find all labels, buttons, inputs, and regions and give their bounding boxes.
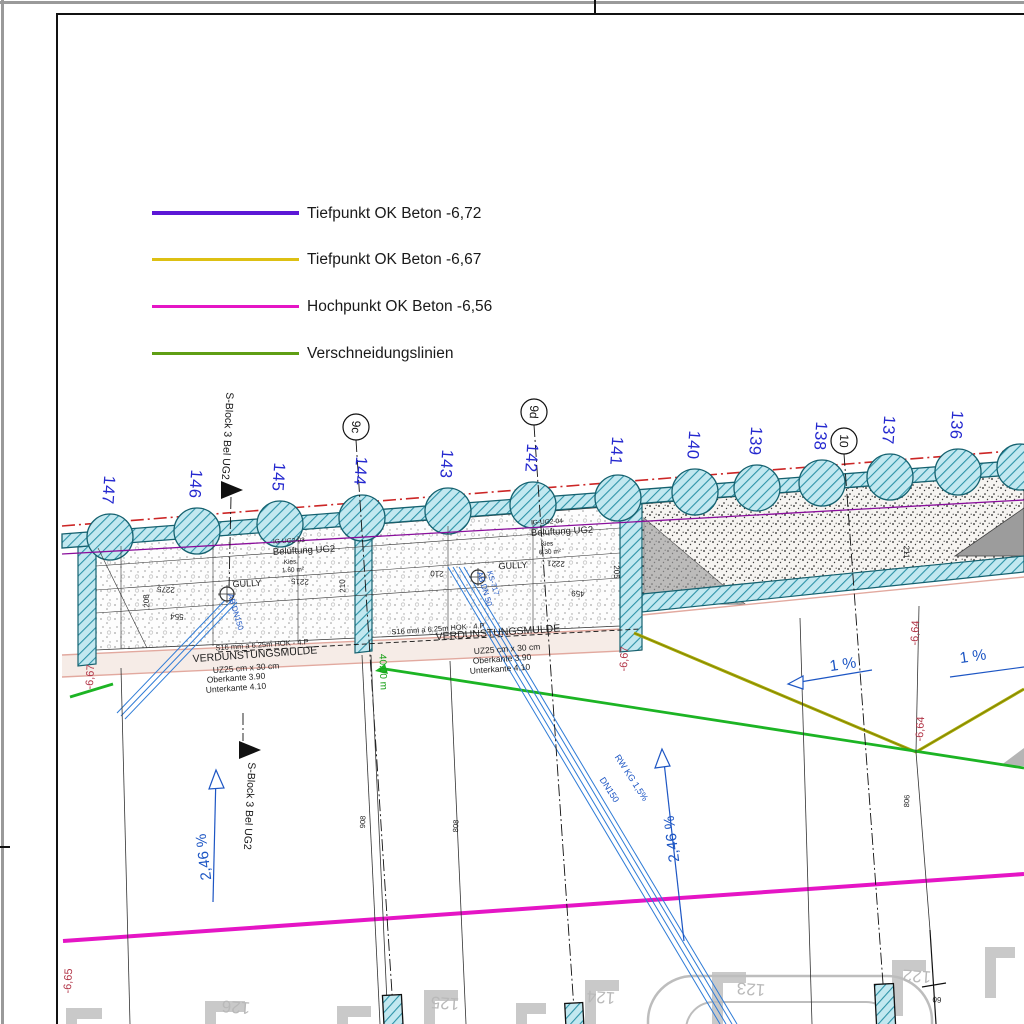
wall-right <box>620 504 642 652</box>
axis-number: 141 <box>607 436 625 466</box>
parking-number: 123 <box>736 980 765 999</box>
legend-label: Hochpunkt OK Beton -6,56 <box>307 299 492 315</box>
grid-bubble-circles <box>343 399 857 454</box>
parking-number: 122 <box>902 967 931 986</box>
legend-label: Tiefpunkt OK Beton -6,72 <box>307 206 481 222</box>
dim-label: 554 <box>170 612 184 621</box>
wall-mid <box>355 524 372 653</box>
axis-number: 136 <box>947 410 965 440</box>
green-dimension-label: 40.00 m <box>376 654 387 690</box>
dim-label: 806 <box>903 795 911 808</box>
dim-label: 60 <box>932 995 941 1004</box>
dim-label: 2275 <box>157 585 175 594</box>
axis-number: 147 <box>99 475 117 505</box>
slope-label-1pct-right: 1 % <box>959 647 988 666</box>
axis-number: 145 <box>269 462 287 492</box>
parking-number: 126 <box>221 998 250 1017</box>
gully-label: GULLY <box>232 579 261 589</box>
dim-label: 808 <box>452 820 460 833</box>
grid-bubble-label: 9d <box>528 405 541 419</box>
dim-label: 205 <box>612 565 620 578</box>
parking-dividers <box>66 947 1015 1024</box>
grid-bubble-label: 10 <box>838 434 851 448</box>
axis-number: 138 <box>811 421 829 451</box>
gray-wedge-small <box>1000 748 1024 766</box>
level-664-lower: -6,64 <box>915 716 927 742</box>
level-665-bottom: -6,65 <box>63 968 75 994</box>
parking-number: 124 <box>586 988 615 1007</box>
vent-area: 6.30 m² <box>539 549 561 557</box>
axis-number: 140 <box>684 430 702 460</box>
legend-swatch-hochpunkt <box>152 305 299 308</box>
vent-material: Kies <box>284 559 297 566</box>
legend-swatch-tiefpunkt-672 <box>152 211 299 215</box>
vent-material: Kies <box>541 541 554 548</box>
dim-label: 210 <box>430 569 444 578</box>
legend-label: Tiefpunkt OK Beton -6,67 <box>307 252 481 268</box>
dim-label: 210 <box>339 579 348 593</box>
legend-swatch-tiefpunkt-667 <box>152 258 299 261</box>
axis-number: 137 <box>879 415 897 445</box>
plan-drawing-view: Tiefpunkt OK Beton -6,72 Tiefpunkt OK Be… <box>0 0 1024 1024</box>
wall-left <box>78 545 96 666</box>
vent-dim: 2215 <box>291 577 309 586</box>
slope-label-1pct-left: 1 % <box>829 655 858 674</box>
level-664-upper: -6,64 <box>910 620 922 646</box>
dim-label: 908 <box>359 816 367 829</box>
dim-label: 211 <box>902 546 910 559</box>
axis-number: 144 <box>351 456 369 486</box>
level-667-left: -6,67 <box>85 664 97 690</box>
drawing-canvas <box>0 0 1024 1024</box>
magenta-line <box>63 874 1024 941</box>
level-667-mid: -6,67 <box>619 646 631 672</box>
legend-label: Verschneidungslinien <box>307 346 454 362</box>
grid-bubble-label: 9c <box>350 420 363 433</box>
slope-arrowheads <box>209 676 803 789</box>
axis-number: 143 <box>437 449 455 479</box>
vent-dim: 2221 <box>547 559 565 568</box>
axis-number: 146 <box>186 469 204 499</box>
parking-number: 125 <box>430 994 459 1013</box>
gully-label: GULLY <box>498 561 527 571</box>
vent-area: 1.60 m² <box>282 567 304 575</box>
axis-number: 139 <box>746 426 764 456</box>
dim-label: 459 <box>571 589 585 598</box>
legend-swatch-verschneidung <box>152 352 299 355</box>
dim-label: 208 <box>143 594 152 608</box>
bottom-columns <box>382 984 896 1024</box>
axis-number: 142 <box>522 443 540 473</box>
